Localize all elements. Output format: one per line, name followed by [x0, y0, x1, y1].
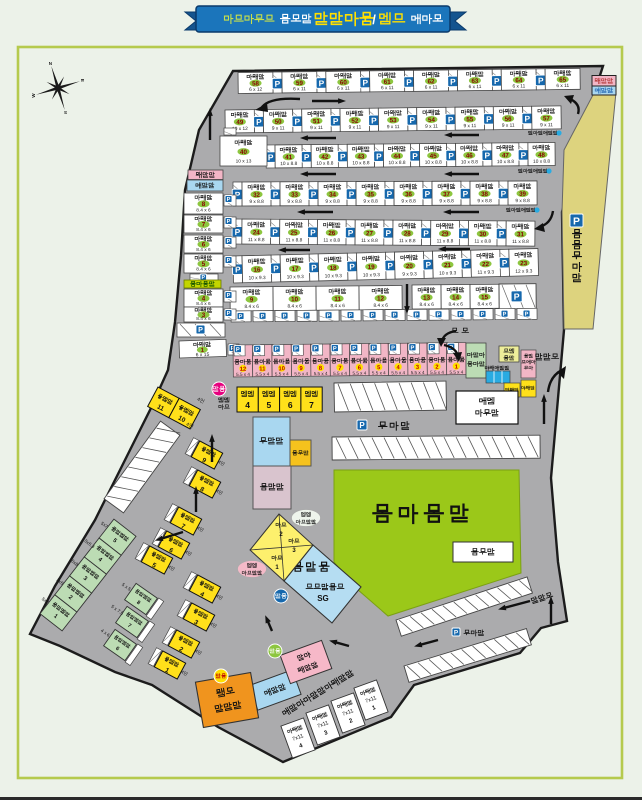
svg-text:P: P	[463, 189, 469, 199]
svg-text:5.5 x 4: 5.5 x 4	[275, 371, 289, 376]
svg-text:19: 19	[368, 264, 376, 271]
svg-text:9 x 11: 9 x 11	[310, 125, 323, 131]
svg-text:11 x 9.3: 11 x 9.3	[477, 269, 494, 275]
svg-text:P: P	[227, 219, 231, 225]
svg-text:P: P	[327, 313, 331, 319]
svg-text:46: 46	[466, 152, 474, 159]
svg-text:10 x 8.8: 10 x 8.8	[388, 160, 405, 166]
svg-text:54: 54	[428, 117, 436, 124]
svg-text:6 x 12: 6 x 12	[249, 87, 262, 93]
svg-text:P: P	[349, 189, 355, 199]
svg-text:P: P	[406, 77, 412, 87]
svg-text:35: 35	[367, 191, 374, 198]
svg-text:10 x 9.3: 10 x 9.3	[287, 274, 305, 280]
svg-text:W: W	[31, 93, 36, 98]
svg-text:57: 57	[543, 115, 551, 122]
svg-text:31: 31	[517, 231, 524, 238]
svg-text:P: P	[294, 116, 300, 126]
svg-text:6 x 11: 6 x 11	[381, 85, 394, 91]
svg-text:10 x 9.3: 10 x 9.3	[249, 275, 267, 281]
svg-text:6 x 11: 6 x 11	[469, 84, 482, 90]
svg-text:9 x 11: 9 x 11	[425, 124, 438, 130]
svg-text:58: 58	[252, 80, 260, 87]
svg-text:P: P	[313, 346, 317, 352]
svg-text:P: P	[501, 189, 507, 199]
svg-text:23: 23	[520, 260, 528, 267]
svg-text:P: P	[385, 228, 391, 238]
svg-text:12: 12	[377, 295, 385, 302]
svg-text:8.4 x 6: 8.4 x 6	[196, 208, 211, 214]
svg-text:15: 15	[481, 294, 489, 301]
svg-text:5.5 x 4: 5.5 x 4	[430, 370, 444, 375]
svg-text:P: P	[349, 262, 355, 272]
svg-text:9 x 11: 9 x 11	[540, 122, 553, 128]
svg-text:11: 11	[334, 296, 341, 303]
svg-text:8.4 x 6: 8.4 x 6	[196, 301, 211, 307]
svg-text:8.4 x 6: 8.4 x 6	[196, 267, 211, 273]
svg-text:11 x 8.8: 11 x 8.8	[399, 238, 416, 244]
svg-text:10 x 8.8: 10 x 8.8	[316, 161, 333, 167]
svg-text:61: 61	[384, 79, 392, 86]
svg-text:P: P	[236, 347, 240, 353]
svg-text:P: P	[333, 116, 339, 126]
svg-text:P: P	[227, 258, 231, 264]
svg-text:52: 52	[351, 118, 359, 125]
svg-text:5.5 x 4: 5.5 x 4	[391, 370, 405, 375]
svg-text:29: 29	[442, 231, 449, 238]
svg-text:42: 42	[321, 154, 329, 161]
svg-text:P: P	[423, 228, 429, 238]
svg-text:9 x 8.8: 9 x 8.8	[515, 198, 530, 204]
svg-text:5.5 x 4: 5.5 x 4	[255, 372, 269, 377]
svg-text:P: P	[391, 346, 395, 352]
svg-text:5.5 x 4: 5.5 x 4	[372, 370, 386, 375]
svg-text:P: P	[464, 259, 470, 269]
svg-text:11 x 8.8: 11 x 8.8	[512, 239, 529, 245]
svg-text:P: P	[387, 261, 393, 271]
svg-text:P: P	[352, 346, 356, 352]
svg-text:P: P	[311, 189, 317, 199]
svg-text:SG: SG	[317, 594, 329, 603]
svg-text:5: 5	[267, 400, 272, 410]
svg-text:16: 16	[253, 267, 261, 274]
svg-text:P: P	[272, 227, 278, 237]
svg-text:P: P	[412, 151, 418, 161]
svg-text:5.5 x 4: 5.5 x 4	[333, 371, 347, 376]
svg-text:P: P	[198, 325, 203, 334]
svg-text:P: P	[333, 346, 337, 352]
svg-text:9 x 8.8: 9 x 8.8	[325, 199, 340, 205]
svg-text:P: P	[227, 197, 231, 203]
svg-text:8.4 x 6: 8.4 x 6	[196, 227, 211, 233]
svg-text:9 x 11: 9 x 11	[464, 123, 477, 129]
svg-text:50: 50	[275, 119, 283, 126]
svg-text:P: P	[275, 347, 279, 353]
svg-text:11 x 8.8: 11 x 8.8	[323, 238, 340, 244]
svg-text:41: 41	[285, 154, 293, 161]
svg-text:P: P	[283, 314, 287, 320]
svg-text:P: P	[268, 152, 274, 162]
svg-text:43: 43	[357, 153, 365, 160]
svg-text:P: P	[454, 629, 459, 636]
svg-text:6 x 11: 6 x 11	[556, 83, 569, 89]
svg-text:P: P	[409, 115, 415, 125]
svg-text:47: 47	[502, 152, 510, 159]
svg-text:P: P	[503, 312, 507, 318]
svg-text:8.4 x 6: 8.4 x 6	[244, 304, 259, 310]
svg-text:10 x 9.3: 10 x 9.3	[325, 273, 343, 279]
svg-text:9 x 11: 9 x 11	[272, 125, 285, 131]
svg-text:P: P	[499, 229, 505, 239]
svg-text:P: P	[525, 312, 529, 318]
svg-text:P: P	[359, 421, 365, 430]
svg-text:P: P	[415, 313, 419, 319]
svg-text:9: 9	[250, 297, 254, 304]
svg-text:P: P	[261, 314, 265, 320]
svg-text:44: 44	[394, 153, 402, 160]
svg-text:51: 51	[313, 118, 321, 125]
svg-text:P: P	[372, 346, 376, 352]
svg-text:9 x 11: 9 x 11	[387, 124, 400, 130]
svg-text:13: 13	[423, 295, 431, 302]
svg-text:P: P	[514, 292, 520, 302]
svg-text:P: P	[304, 152, 310, 162]
svg-text:P: P	[484, 150, 490, 160]
svg-text:P: P	[502, 258, 508, 268]
svg-text:P: P	[255, 347, 259, 353]
svg-text:6 x 15: 6 x 15	[196, 352, 210, 358]
svg-text:62: 62	[428, 78, 436, 85]
svg-text:11 x 8.8: 11 x 8.8	[361, 238, 378, 244]
svg-text:P: P	[348, 228, 354, 238]
svg-text:22: 22	[482, 261, 490, 268]
svg-text:8.4 x 6: 8.4 x 6	[287, 303, 302, 309]
svg-text:P: P	[430, 345, 434, 351]
svg-text:5.5 x 4: 5.5 x 4	[411, 370, 425, 375]
svg-text:12 x 9.3: 12 x 9.3	[515, 268, 533, 274]
svg-text:60: 60	[340, 79, 348, 86]
svg-text:8.4 x 6: 8.4 x 6	[196, 247, 211, 253]
svg-text:9 x 8.8: 9 x 8.8	[249, 199, 264, 205]
svg-text:10: 10	[291, 296, 299, 303]
svg-text:P: P	[459, 312, 463, 318]
svg-text:11 x 8.8: 11 x 8.8	[286, 237, 303, 243]
svg-text:P: P	[461, 228, 467, 238]
svg-text:20: 20	[406, 263, 414, 270]
svg-text:/: /	[372, 12, 376, 27]
svg-text:10 x 8.8: 10 x 8.8	[461, 159, 478, 165]
svg-text:30: 30	[479, 231, 486, 238]
svg-text:P: P	[393, 313, 397, 319]
svg-text:63: 63	[471, 78, 479, 85]
svg-text:P: P	[235, 227, 241, 237]
svg-text:P: P	[310, 227, 316, 237]
svg-text:10 x 8.8: 10 x 8.8	[280, 161, 297, 167]
svg-text:P: P	[294, 347, 298, 353]
svg-text:P: P	[573, 216, 580, 227]
svg-text:8.4 x 6: 8.4 x 6	[196, 316, 211, 322]
svg-text:49: 49	[236, 119, 244, 126]
svg-text:8.4 x 6: 8.4 x 6	[419, 302, 434, 308]
svg-text:10 x 8.8: 10 x 8.8	[497, 159, 514, 165]
svg-text:P: P	[538, 75, 544, 85]
svg-text:P: P	[275, 79, 281, 89]
svg-text:8: 8	[202, 201, 206, 208]
svg-text:P: P	[425, 260, 431, 270]
svg-text:9 x 8.8: 9 x 8.8	[401, 198, 416, 204]
svg-text:26: 26	[328, 230, 335, 237]
svg-text:6 x 11: 6 x 11	[293, 86, 306, 92]
svg-text:P: P	[494, 76, 500, 86]
svg-text:P: P	[450, 77, 456, 87]
svg-text:P: P	[340, 152, 346, 162]
svg-text:10 x 13: 10 x 13	[236, 158, 252, 164]
svg-text:9 x 8.8: 9 x 8.8	[287, 199, 302, 205]
svg-text:P: P	[273, 189, 279, 199]
svg-text:28: 28	[404, 230, 411, 237]
svg-text:9 x 8.8: 9 x 8.8	[477, 198, 492, 204]
svg-text:P: P	[371, 115, 377, 125]
svg-text:P: P	[387, 189, 393, 199]
svg-text:P: P	[524, 114, 530, 124]
svg-text:32: 32	[253, 192, 260, 199]
svg-text:P: P	[481, 312, 485, 318]
svg-text:P: P	[448, 151, 454, 161]
svg-text:36: 36	[405, 191, 412, 198]
svg-text:10 x 9.3: 10 x 9.3	[363, 272, 381, 278]
svg-text:11 x 8.8: 11 x 8.8	[474, 239, 491, 245]
svg-text:6 x 11: 6 x 11	[425, 85, 438, 91]
svg-text:P: P	[256, 117, 262, 127]
svg-text:5.5 x 4: 5.5 x 4	[449, 370, 463, 375]
svg-text:6: 6	[288, 400, 293, 410]
svg-text:P: P	[273, 263, 279, 273]
svg-text:5.5 x 4: 5.5 x 4	[314, 371, 328, 376]
svg-text:11 x 8.8: 11 x 8.8	[248, 237, 265, 243]
svg-text:8.4 x 6: 8.4 x 6	[373, 303, 388, 309]
svg-text:P: P	[521, 150, 527, 160]
svg-text:37: 37	[443, 191, 450, 198]
svg-text:65: 65	[559, 77, 567, 84]
svg-text:P: P	[227, 311, 231, 317]
svg-text:34: 34	[329, 191, 336, 198]
svg-text:P: P	[486, 114, 492, 124]
svg-text:64: 64	[515, 77, 523, 84]
svg-text:5.5 x 4: 5.5 x 4	[294, 371, 308, 376]
svg-text:8.4 x 6: 8.4 x 6	[448, 302, 463, 308]
svg-text:P: P	[425, 189, 431, 199]
svg-text:39: 39	[519, 191, 526, 198]
svg-text:9 x 11: 9 x 11	[502, 123, 515, 129]
svg-text:11 x 8.8: 11 x 8.8	[437, 238, 454, 244]
svg-text:56: 56	[505, 116, 513, 123]
svg-text:45: 45	[430, 153, 438, 160]
svg-text:48: 48	[538, 152, 546, 159]
svg-text:17: 17	[292, 266, 300, 273]
svg-text:P: P	[318, 78, 324, 88]
svg-text:P: P	[239, 314, 243, 320]
svg-text:10 x 8.8: 10 x 8.8	[533, 159, 550, 165]
svg-text:10 x 8.8: 10 x 8.8	[352, 160, 369, 166]
svg-text:9 x 11: 9 x 11	[349, 125, 362, 131]
svg-text:6 x 11: 6 x 11	[337, 86, 350, 92]
svg-text:7: 7	[309, 400, 314, 410]
svg-text:P: P	[349, 313, 353, 319]
svg-text:10 x 8.8: 10 x 8.8	[425, 160, 442, 166]
svg-text:53: 53	[390, 117, 398, 124]
svg-text:27: 27	[366, 230, 373, 237]
svg-text:P: P	[448, 115, 454, 125]
svg-text:5.5 x 4: 5.5 x 4	[236, 372, 250, 377]
svg-text:P: P	[305, 314, 309, 320]
svg-text:24: 24	[253, 229, 260, 236]
svg-text:14: 14	[452, 294, 460, 301]
svg-text:38: 38	[481, 191, 488, 198]
svg-text:8.4 x 6: 8.4 x 6	[330, 303, 345, 309]
svg-text:P: P	[311, 262, 317, 272]
svg-text:9 x 8.8: 9 x 8.8	[439, 198, 454, 204]
svg-text:P: P	[227, 293, 231, 299]
svg-text:10 x 9.3: 10 x 9.3	[439, 270, 457, 276]
svg-text:P: P	[437, 312, 441, 318]
svg-text:5.5 x 4: 5.5 x 4	[352, 371, 366, 376]
svg-text:8.4 x 6: 8.4 x 6	[477, 301, 492, 307]
svg-text:21: 21	[444, 262, 452, 269]
svg-text:9 x 9.3: 9 x 9.3	[402, 271, 417, 277]
svg-text:P: P	[376, 151, 382, 161]
svg-text:18: 18	[330, 265, 338, 272]
svg-text:40: 40	[240, 149, 247, 156]
svg-text:4: 4	[245, 400, 250, 410]
svg-text:S: S	[64, 110, 67, 115]
svg-text:25: 25	[291, 230, 298, 237]
svg-text:E: E	[80, 79, 85, 82]
svg-text:33: 33	[291, 192, 298, 199]
svg-text:55: 55	[466, 116, 474, 123]
svg-text:P: P	[410, 345, 414, 351]
svg-text:P: P	[371, 313, 375, 319]
svg-text:P: P	[227, 239, 231, 245]
svg-text:6 x 11: 6 x 11	[512, 83, 525, 89]
svg-text:P: P	[362, 78, 368, 88]
svg-text:59: 59	[296, 80, 304, 87]
svg-text:9 x 8.8: 9 x 8.8	[363, 199, 378, 205]
